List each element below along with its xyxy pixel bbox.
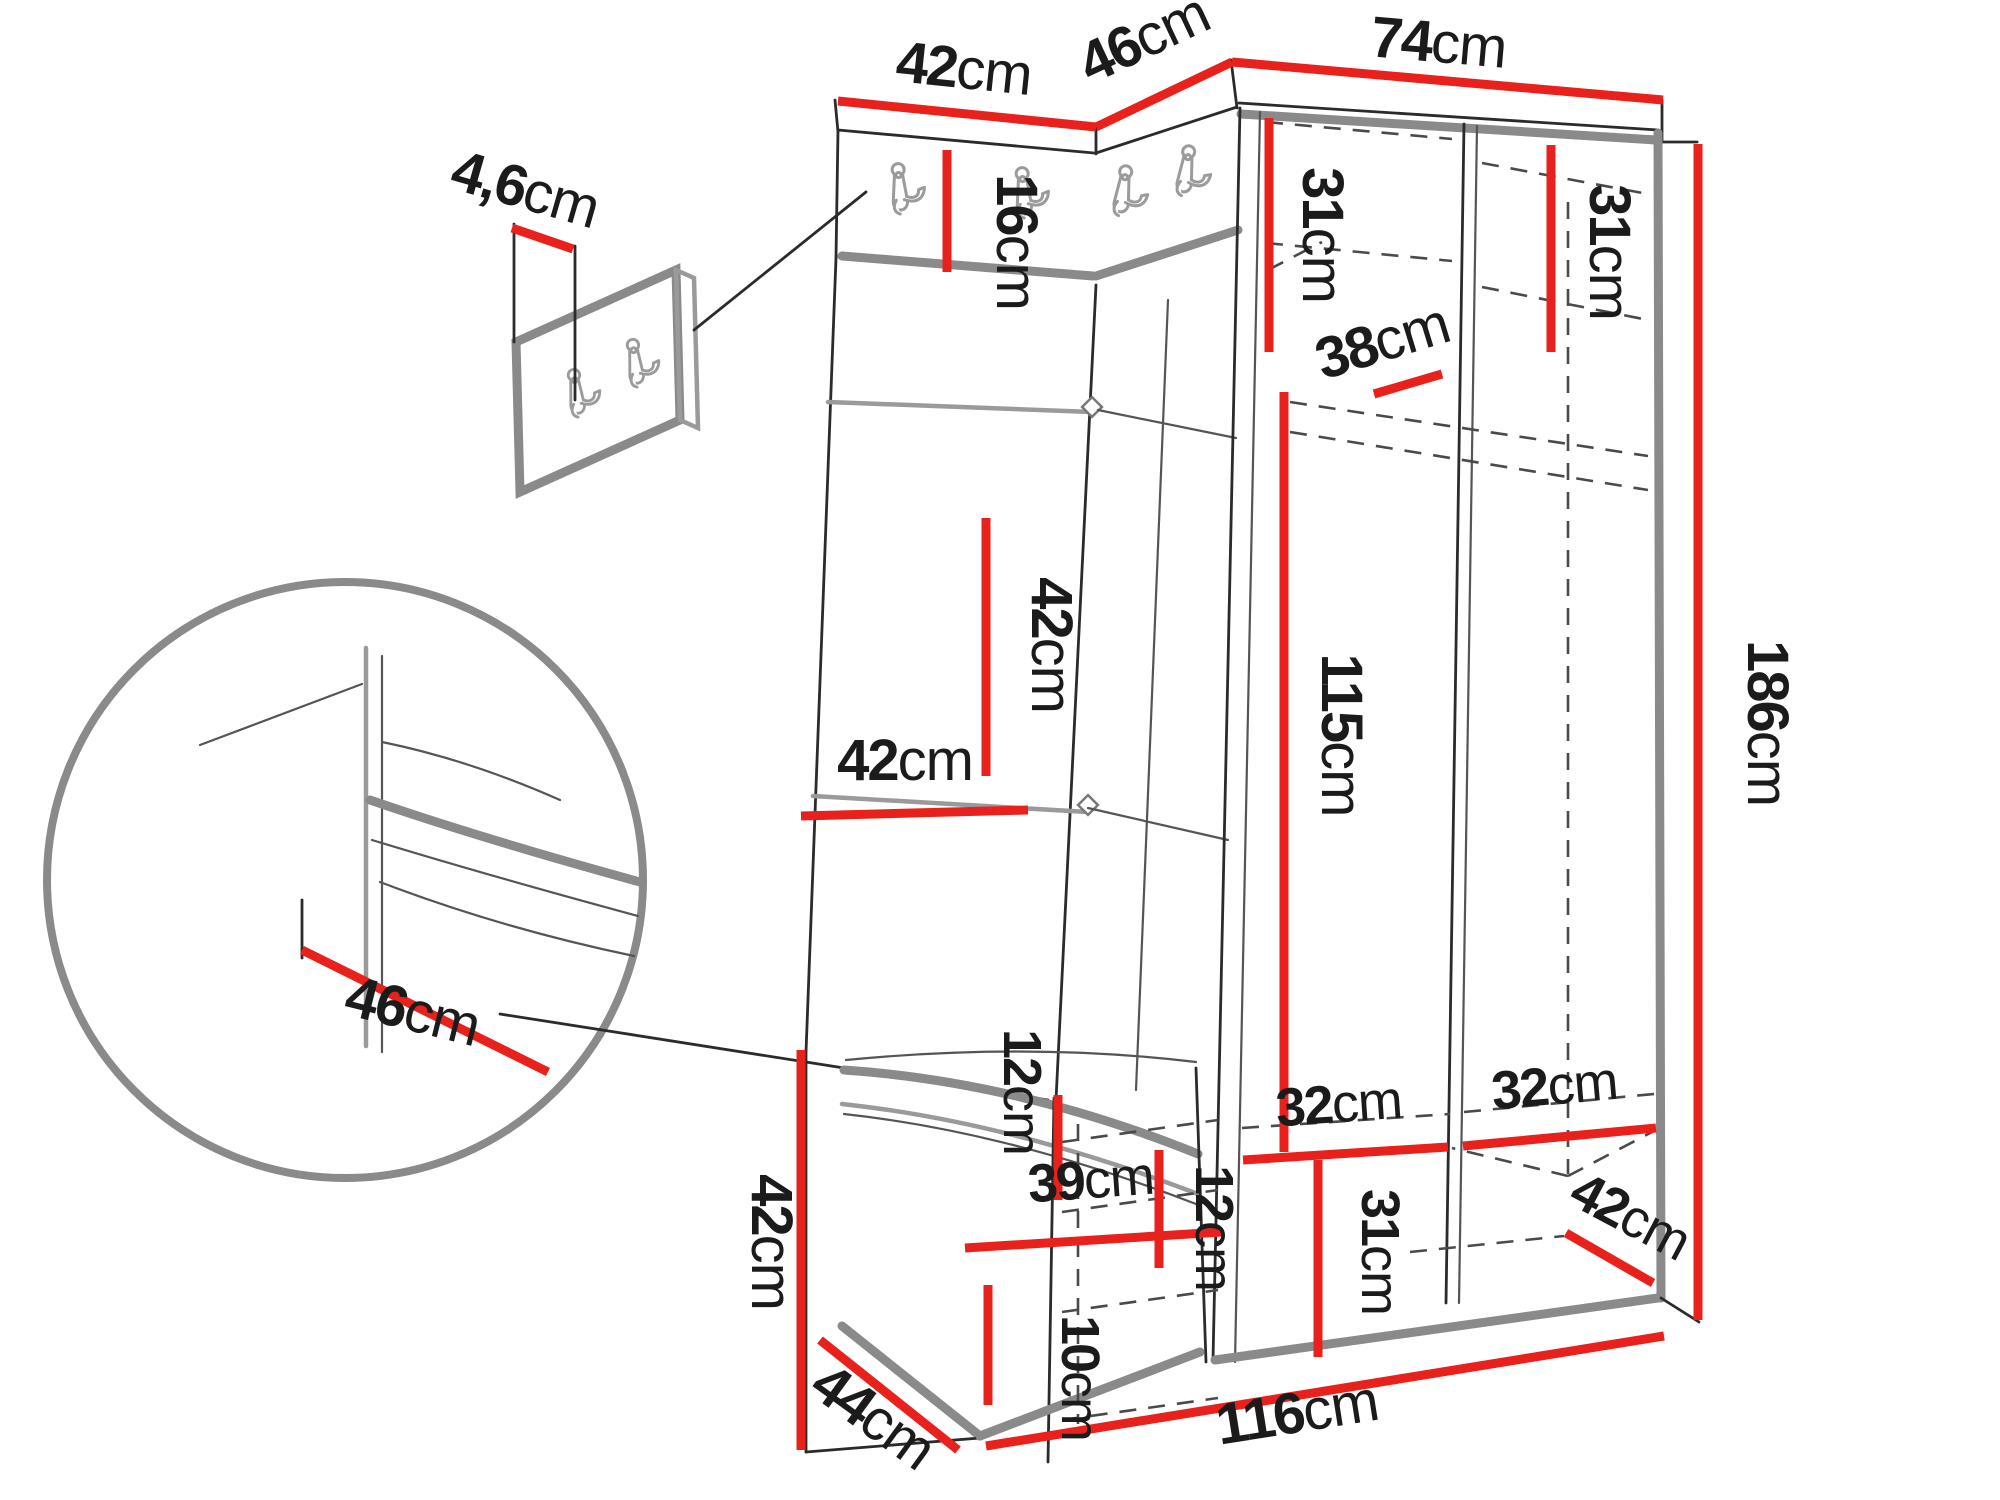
dim-label-shelf-right-bottom: 32cm [1489, 1051, 1620, 1122]
dim-line-shelf-left-bottom [1243, 1147, 1448, 1160]
dim-label-panel-thickness: 4,6cm [444, 137, 606, 241]
dim-line-top-left-width [838, 101, 1096, 127]
dim-label-shelf-left-bottom: 32cm [1274, 1070, 1404, 1139]
coat-hook-icon [1175, 145, 1214, 199]
diagram-canvas: 42cm 46cm 74cm 4,6cm 16cm 31cm 31cm 38cm… [0, 0, 2000, 1500]
coat-hook-icon [891, 162, 927, 215]
right-front-edge [1658, 133, 1661, 1298]
rail-top-edge [838, 130, 1094, 153]
panel-thickness-detail [512, 192, 866, 492]
dim-label-bench-inner-width: 39cm [1026, 1146, 1156, 1215]
dim-label-top-right-width: 74cm [1368, 4, 1509, 81]
dim-line-panel-square-width [801, 810, 1028, 816]
dim-line-shelf-right-bottom [1463, 1128, 1656, 1146]
dim-label-shelf-right-top: 31cm [1577, 184, 1642, 320]
dim-label-bench-shelf-gap: 12cm [1184, 1165, 1244, 1291]
bottom-right-step [1661, 1298, 1699, 1322]
bench-shelf-dashed [1062, 1290, 1218, 1312]
coat-hook-icon [566, 366, 602, 417]
corner-panel-seam [1088, 808, 1228, 840]
rail-left-edge [836, 130, 838, 258]
dim-label-panel-square-width: 42cm [837, 728, 973, 793]
rail-bottom-edge [842, 256, 1093, 276]
dim-label-bench-height: 42cm [739, 1174, 804, 1310]
dim-label-hanging-space: 115cm [1309, 654, 1374, 817]
interior-dashed [1410, 1236, 1564, 1252]
interior-dashed [1452, 1148, 1568, 1176]
dim-label-total-height: 186cm [1735, 640, 1800, 806]
detail-circle [47, 582, 643, 1178]
dim-label-bench-top-clearance: 12cm [992, 1029, 1052, 1155]
dim-label-shelf-left-top: 31cm [1290, 167, 1355, 303]
coat-hook-icon [1112, 165, 1151, 219]
dim-label-panel-square-height: 42cm [1019, 577, 1084, 713]
panel-seam [828, 402, 1092, 412]
column-left-edge [806, 258, 836, 1052]
dim-label-top-left-width: 42cm [893, 29, 1035, 108]
furniture-dimension-drawing: 42cm 46cm 74cm 4,6cm 16cm 31cm 31cm 38cm… [0, 0, 2000, 1500]
dim-label-bench-plinth: 10cm [1050, 1315, 1110, 1441]
detail-panel-front [516, 270, 680, 492]
corner-panel-seam [1098, 410, 1236, 438]
rail-shelf-dashed [1290, 402, 1648, 456]
seat-depth-detail [47, 582, 1048, 1178]
dim-label-hook-rail-height: 16cm [984, 174, 1049, 310]
dim-line-bench-inner-width [965, 1232, 1222, 1248]
dim-label-bottom-compartment: 31cm [1350, 1189, 1410, 1315]
dim-line-rail-offset [1374, 374, 1442, 394]
extension-line [1231, 60, 1237, 108]
rail-shelf-dashed [1290, 432, 1648, 490]
dim-label-total-width: 116cm [1211, 1368, 1382, 1458]
dim-label-bottom-right-depth: 42cm [1561, 1160, 1700, 1272]
extension-line [1662, 100, 1697, 142]
callout-pointer [694, 192, 866, 330]
corner-rail-bottom-edge [1096, 230, 1238, 276]
dim-label-bench-depth: 44cm [799, 1350, 947, 1482]
extension-line [835, 100, 838, 132]
coat-hook-icon [625, 336, 661, 387]
